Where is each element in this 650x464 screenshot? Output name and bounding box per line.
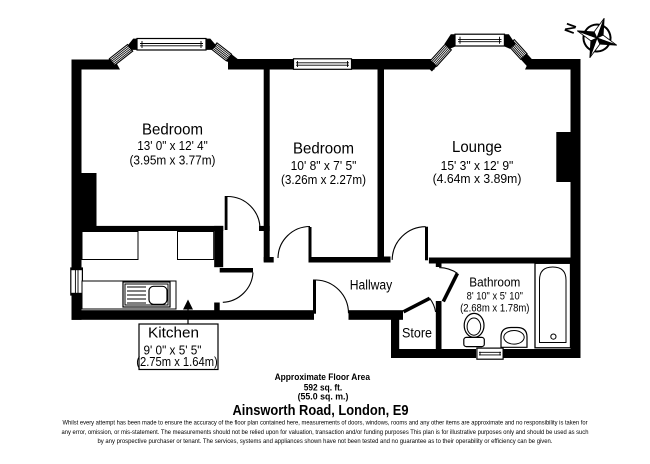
svg-text:10' 8" x 7' 5": 10' 8" x 7' 5" xyxy=(291,158,357,173)
svg-text:(3.95m x 3.77m): (3.95m x 3.77m) xyxy=(130,153,216,168)
svg-text:(2.68m x 1.78m): (2.68m x 1.78m) xyxy=(460,302,529,314)
svg-text:Store: Store xyxy=(402,325,432,341)
svg-text:Bedroom: Bedroom xyxy=(293,141,354,158)
svg-text:Hallway: Hallway xyxy=(350,278,393,293)
svg-text:Bedroom: Bedroom xyxy=(142,122,203,139)
svg-text:Ainsworth Road, London, E9: Ainsworth Road, London, E9 xyxy=(233,403,409,419)
svg-text:8' 10" x 5' 10": 8' 10" x 5' 10" xyxy=(467,291,523,303)
svg-text:Bathroom: Bathroom xyxy=(469,274,520,289)
svg-text:(4.64m x 3.89m): (4.64m x 3.89m) xyxy=(433,171,522,186)
svg-text:13' 0" x 12' 4": 13' 0" x 12' 4" xyxy=(137,138,208,153)
svg-text:(3.26m x 2.27m): (3.26m x 2.27m) xyxy=(281,172,366,187)
svg-text:Approximate Floor Area: Approximate Floor Area xyxy=(275,372,371,382)
svg-text:any error, omission, or mis-st: any error, omission, or mis-statement. T… xyxy=(62,430,589,436)
svg-text:(55.0 sq. m.): (55.0 sq. m.) xyxy=(298,392,349,402)
svg-text:Lounge: Lounge xyxy=(452,139,502,156)
svg-text:(2.75m x 1.64m): (2.75m x 1.64m) xyxy=(136,354,218,369)
svg-text:Kitchen: Kitchen xyxy=(148,325,199,342)
svg-text:by any prospective purchaser o: by any prospective purchaser or tenant. … xyxy=(98,439,553,445)
svg-text:Whilst every attempt has been: Whilst every attempt has been made to en… xyxy=(63,420,588,426)
